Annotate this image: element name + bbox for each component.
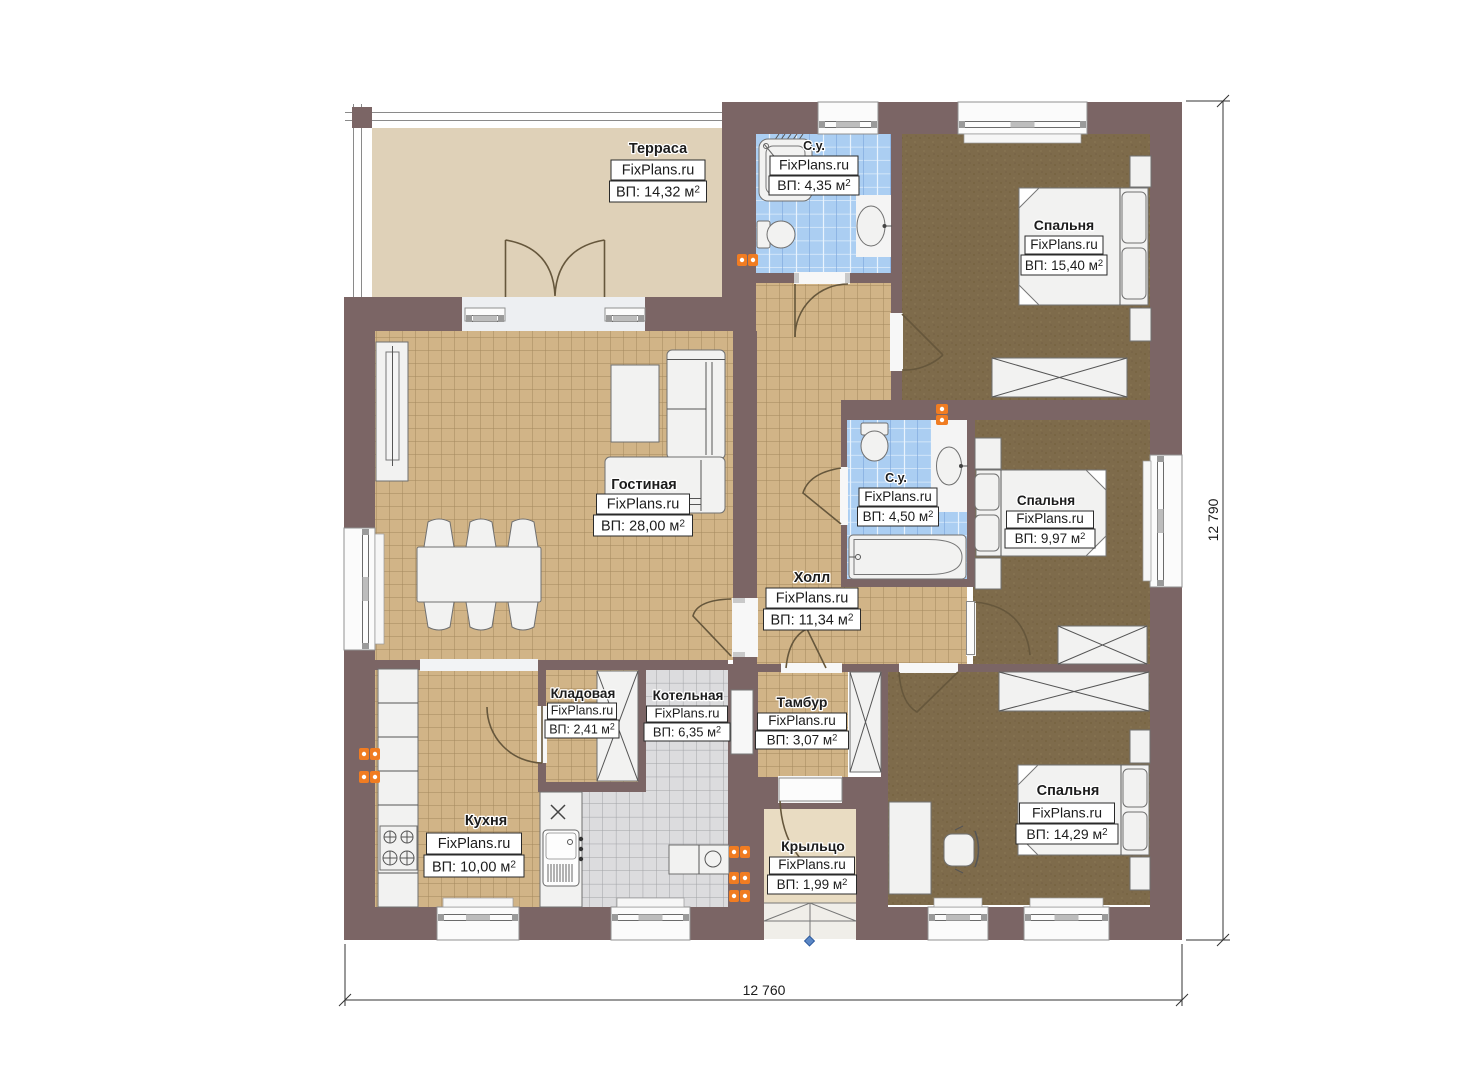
svg-text:FixPlans.ru: FixPlans.ru [778,857,846,872]
svg-text:Гостиная: Гостиная [611,477,677,493]
svg-text:FixPlans.ru: FixPlans.ru [1016,511,1084,526]
svg-text:С.у.: С.у. [885,471,907,485]
svg-text:Спальня: Спальня [1017,493,1075,508]
svg-text:FixPlans.ru: FixPlans.ru [864,489,932,504]
svg-text:ВП: 14,29 м2: ВП: 14,29 м2 [1026,826,1107,842]
svg-text:Спальня: Спальня [1034,217,1094,233]
svg-text:Спальня: Спальня [1037,783,1100,799]
svg-text:12 790: 12 790 [1205,498,1221,541]
svg-text:Крыльцо: Крыльцо [781,838,845,854]
svg-text:ВП: 4,50 м2: ВП: 4,50 м2 [863,508,934,524]
svg-text:ВП: 28,00 м2: ВП: 28,00 м2 [601,519,685,535]
svg-text:FixPlans.ru: FixPlans.ru [776,590,849,606]
svg-text:Кладовая: Кладовая [551,686,616,701]
svg-text:ВП: 11,34 м2: ВП: 11,34 м2 [771,613,854,629]
svg-text:ВП: 1,99 м2: ВП: 1,99 м2 [777,876,848,892]
svg-text:FixPlans.ru: FixPlans.ru [768,713,836,728]
svg-text:FixPlans.ru: FixPlans.ru [1032,804,1102,820]
svg-text:Тамбур: Тамбур [777,694,828,710]
svg-text:FixPlans.ru: FixPlans.ru [438,836,511,852]
svg-text:FixPlans.ru: FixPlans.ru [779,157,849,173]
svg-text:Кухня: Кухня [465,813,507,829]
svg-text:12 760: 12 760 [743,982,786,998]
svg-text:FixPlans.ru: FixPlans.ru [607,496,680,512]
svg-text:ВП: 4,35 м2: ВП: 4,35 м2 [777,177,850,193]
svg-text:Терраса: Терраса [629,141,688,157]
svg-text:FixPlans.ru: FixPlans.ru [654,706,719,721]
svg-text:ВП: 6,35 м2: ВП: 6,35 м2 [653,724,721,739]
svg-text:FixPlans.ru: FixPlans.ru [622,162,695,178]
svg-text:Холл: Холл [794,570,830,586]
svg-text:ВП: 3,07 м2: ВП: 3,07 м2 [767,731,838,747]
svg-text:ВП: 9,97 м2: ВП: 9,97 м2 [1015,530,1086,546]
svg-text:ВП: 14,32 м2: ВП: 14,32 м2 [616,185,700,201]
svg-text:ВП: 15,40 м2: ВП: 15,40 м2 [1025,257,1103,273]
svg-text:ВП: 2,41 м2: ВП: 2,41 м2 [549,721,615,736]
svg-text:ВП: 10,00 м2: ВП: 10,00 м2 [432,859,516,875]
svg-text:FixPlans.ru: FixPlans.ru [1030,237,1098,252]
svg-text:Котельная: Котельная [653,688,724,703]
svg-text:С.у.: С.у. [803,139,825,153]
svg-text:FixPlans.ru: FixPlans.ru [551,704,614,718]
